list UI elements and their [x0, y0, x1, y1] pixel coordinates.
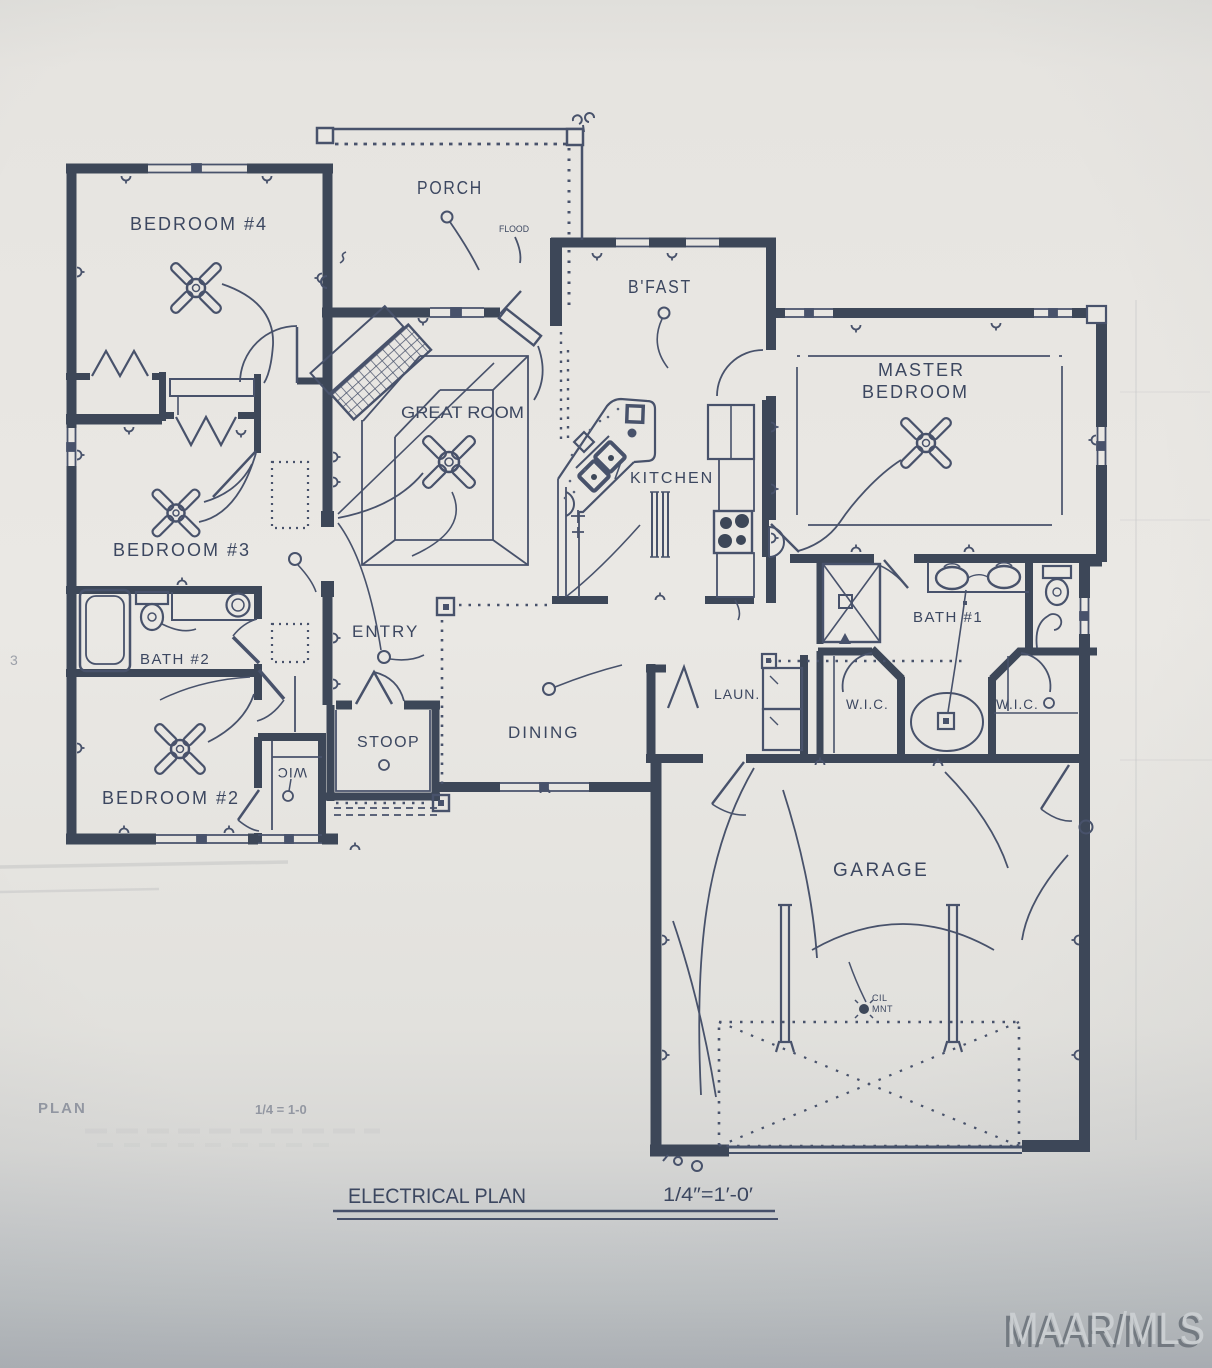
svg-text:ENTRY: ENTRY — [352, 622, 419, 641]
svg-text:BEDROOM: BEDROOM — [862, 382, 969, 402]
svg-text:BEDROOM #3: BEDROOM #3 — [113, 540, 251, 560]
svg-text:PLAN: PLAN — [38, 1100, 87, 1117]
svg-text:MNT: MNT — [872, 1004, 893, 1014]
svg-text:STOOP: STOOP — [357, 734, 420, 751]
svg-text:1/4″=1′-0′: 1/4″=1′-0′ — [663, 1185, 753, 1206]
svg-text:KITCHEN: KITCHEN — [630, 470, 714, 487]
svg-text:WIC: WIC — [277, 765, 307, 781]
svg-text:MAAR/MLS: MAAR/MLS — [1007, 1303, 1205, 1354]
svg-text:BATH #1: BATH #1 — [913, 609, 983, 626]
svg-text:BEDROOM #4: BEDROOM #4 — [130, 214, 268, 234]
svg-text:GARAGE: GARAGE — [833, 860, 929, 881]
svg-text:DINING: DINING — [508, 723, 580, 742]
svg-text:BATH #2: BATH #2 — [140, 651, 210, 668]
svg-text:BEDROOM #2: BEDROOM #2 — [102, 788, 240, 808]
svg-text:3: 3 — [10, 652, 18, 668]
svg-text:ELECTRICAL PLAN: ELECTRICAL PLAN — [348, 1185, 526, 1208]
svg-text:B'FAST: B'FAST — [628, 277, 692, 297]
svg-text:CIL: CIL — [872, 993, 888, 1003]
svg-text:MASTER: MASTER — [878, 360, 965, 380]
svg-text:FLOOD: FLOOD — [499, 224, 529, 235]
svg-text:1/4 = 1-0: 1/4 = 1-0 — [255, 1102, 307, 1117]
svg-text:PORCH: PORCH — [417, 178, 483, 198]
svg-text:W.I.C.: W.I.C. — [846, 697, 889, 712]
svg-text:LAUN.: LAUN. — [714, 686, 760, 702]
svg-text:W.I.C.: W.I.C. — [996, 697, 1039, 712]
